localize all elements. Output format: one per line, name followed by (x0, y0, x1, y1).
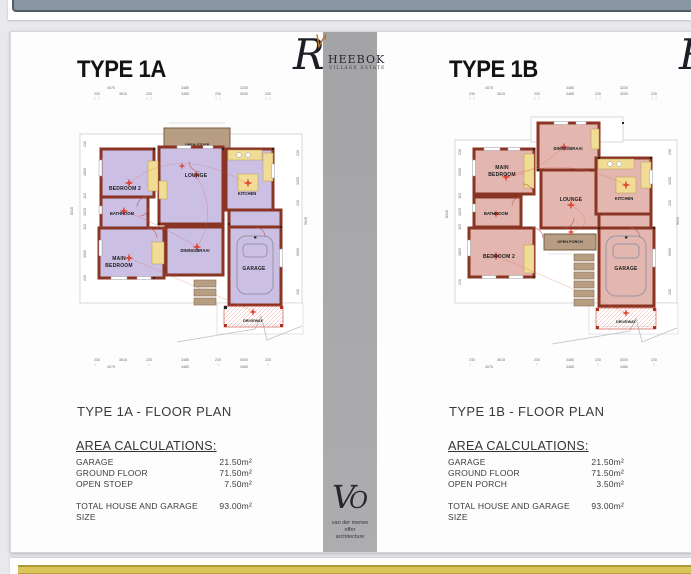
area-total-label: TOTAL HOUSE AND GARAGE SIZE (448, 501, 591, 523)
svg-text:230: 230 (265, 358, 271, 362)
svg-text:115: 115 (83, 193, 87, 199)
plan-1b-area-calculations: AREA CALCULATIONS: GARAGE 21.50m² GROUND… (448, 439, 624, 523)
svg-text:3230: 3230 (240, 86, 248, 90)
svg-text:3615: 3615 (119, 92, 127, 96)
steps (194, 280, 216, 305)
plan-1b-caption: TYPE 1B - FLOOR PLAN (449, 404, 604, 419)
svg-text:BATHROOM: BATHROOM (110, 211, 135, 216)
svg-text:1625: 1625 (83, 208, 87, 216)
svg-text:230: 230 (296, 200, 300, 206)
room-label-driveway: DRIVEWAY (616, 320, 636, 324)
area-row: GROUND FLOOR 71.50m² (448, 468, 624, 479)
svg-text:230: 230 (83, 141, 87, 147)
dimensions-bottom: 230 3615 230 3485 230 3000 230 4075 3485… (469, 358, 657, 369)
area-value: 21.50m² (591, 457, 624, 468)
svg-text:230: 230 (534, 358, 540, 362)
svg-text:BEDROOM 2: BEDROOM 2 (483, 254, 515, 260)
area-total-value: 93.00m² (591, 501, 624, 523)
area-label: GROUND FLOOR (76, 468, 148, 479)
svg-text:4075: 4075 (107, 365, 115, 369)
driveway: DRIVEWAY (596, 308, 656, 329)
area-heading: AREA CALCULATIONS: (76, 439, 252, 453)
room-utility (229, 210, 281, 227)
room-label-driveway: DRIVEWAY (243, 319, 263, 323)
svg-text:230: 230 (595, 358, 601, 362)
svg-text:6000: 6000 (296, 248, 300, 256)
estate-subtitle: VILLAGE ESTATE (329, 66, 385, 71)
svg-text:3000: 3000 (620, 358, 628, 362)
estate-logo-antler-icon (316, 33, 330, 49)
svg-text:3615: 3615 (119, 358, 127, 362)
architect-logo: VO van der merwe offer architecture (323, 480, 377, 541)
svg-text:4075: 4075 (485, 86, 493, 90)
area-value: 7.50m² (224, 479, 252, 490)
svg-text:3485: 3485 (181, 86, 189, 90)
svg-text:3255: 3255 (668, 177, 672, 185)
svg-text:DINING/BRAAI: DINING/BRAAI (180, 248, 209, 253)
svg-text:230: 230 (94, 92, 100, 96)
area-value: 71.50m² (219, 468, 252, 479)
svg-text:3480: 3480 (240, 365, 248, 369)
svg-text:3255: 3255 (296, 177, 300, 185)
svg-text:230: 230 (296, 150, 300, 156)
svg-text:6000: 6000 (668, 248, 672, 256)
plan-1a-caption: TYPE 1A - FLOOR PLAN (77, 404, 232, 419)
area-total-label: TOTAL HOUSE AND GARAGE SIZE (76, 501, 219, 523)
svg-text:3000: 3000 (240, 358, 248, 362)
svg-text:3485: 3485 (566, 365, 574, 369)
floor-plan-1b-drawing: 4075 3485 3230 230 3615 230 3485 230 300… (434, 84, 691, 384)
estate-logo-r-glyph-partial: R (679, 34, 691, 76)
svg-text:GARAGE: GARAGE (614, 266, 638, 272)
svg-text:230: 230 (668, 289, 672, 295)
svg-text:230: 230 (83, 275, 87, 281)
svg-text:LOUNGE: LOUNGE (185, 173, 208, 179)
svg-text:9945: 9945 (676, 217, 680, 225)
area-row: GROUND FLOOR 71.50m² (76, 468, 252, 479)
svg-text:115: 115 (458, 193, 462, 199)
room-lounge (159, 147, 223, 224)
plan-1b-title: TYPE 1B (449, 56, 538, 84)
driveway: DRIVEWAY (224, 306, 283, 327)
svg-text:230: 230 (458, 149, 462, 155)
area-label: OPEN STOEP (76, 479, 133, 490)
area-label: GARAGE (448, 457, 486, 468)
area-total-row: TOTAL HOUSE AND GARAGE SIZE 93.00m² (76, 501, 252, 523)
svg-text:MAIN: MAIN (495, 165, 509, 171)
svg-text:230: 230 (651, 92, 657, 96)
next-page-edge[interactable] (10, 558, 691, 574)
svg-text:4075: 4075 (107, 86, 115, 90)
dimensions-bottom: 230 3615 230 3485 230 3000 230 4075 3485… (94, 358, 271, 369)
svg-text:115: 115 (83, 224, 87, 230)
floor-plan-1a-drawing: 4075 3485 3230 230 3615 230 3485 230 300… (59, 84, 321, 384)
svg-text:BEDROOM 2: BEDROOM 2 (109, 186, 141, 192)
svg-text:230: 230 (469, 92, 475, 96)
svg-text:230: 230 (458, 279, 462, 285)
svg-text:8315: 8315 (445, 210, 449, 218)
svg-text:230: 230 (668, 149, 672, 155)
svg-text:2800: 2800 (83, 168, 87, 176)
svg-text:3485: 3485 (181, 358, 189, 362)
area-value: 3.50m² (596, 479, 624, 490)
svg-text:2800: 2800 (458, 248, 462, 256)
svg-text:3485: 3485 (566, 92, 574, 96)
area-heading: AREA CALCULATIONS: (448, 439, 624, 453)
plan-1a-area-calculations: AREA CALCULATIONS: GARAGE 21.50m² GROUND… (76, 439, 252, 523)
svg-text:230: 230 (94, 358, 100, 362)
svg-text:230: 230 (595, 92, 601, 96)
area-label: GROUND FLOOR (448, 468, 520, 479)
document-viewer: R HEEBOK VILLAGE ESTATE R VO van der mer… (0, 0, 691, 574)
svg-text:3000: 3000 (458, 168, 462, 176)
svg-text:MAIN: MAIN (112, 256, 126, 262)
svg-text:1625: 1625 (458, 208, 462, 216)
previous-page-bar (12, 0, 691, 12)
architect-monogram-o: O (349, 488, 368, 514)
svg-text:BEDROOM: BEDROOM (488, 172, 516, 178)
svg-text:230: 230 (146, 92, 152, 96)
svg-text:3480: 3480 (620, 365, 628, 369)
room-utility (599, 214, 651, 228)
svg-text:115: 115 (458, 224, 462, 230)
architect-name-line3: architecture (323, 534, 377, 541)
plan-1a-title: TYPE 1A (77, 56, 166, 84)
area-label: OPEN PORCH (448, 479, 507, 490)
svg-text:3000: 3000 (240, 92, 248, 96)
previous-page-edge[interactable] (8, 0, 691, 20)
svg-text:230: 230 (534, 92, 540, 96)
svg-text:3615: 3615 (497, 92, 505, 96)
svg-text:3485: 3485 (181, 365, 189, 369)
svg-text:230: 230 (651, 358, 657, 362)
svg-text:3000: 3000 (83, 250, 87, 258)
svg-text:DINING/BRAAI: DINING/BRAAI (553, 146, 582, 151)
svg-text:230: 230 (469, 358, 475, 362)
svg-text:230: 230 (296, 289, 300, 295)
area-value: 71.50m² (591, 468, 624, 479)
svg-text:KITCHEN: KITCHEN (615, 196, 634, 201)
svg-text:KITCHEN: KITCHEN (238, 191, 257, 196)
svg-text:3615: 3615 (497, 358, 505, 362)
floor-plans-page[interactable]: R HEEBOK VILLAGE ESTATE R VO van der mer… (10, 31, 691, 553)
dimensions-top: 4075 3485 3230 230 3615 230 3485 230 300… (94, 86, 271, 100)
svg-text:3485: 3485 (566, 358, 574, 362)
svg-text:9945: 9945 (304, 217, 308, 225)
svg-text:3485: 3485 (181, 92, 189, 96)
dimensions-top: 4075 3485 3230 230 3615 230 3485 230 300… (469, 86, 657, 100)
svg-text:3485: 3485 (566, 86, 574, 90)
next-page-gold-frame (18, 565, 691, 574)
svg-text:230: 230 (215, 358, 221, 362)
svg-text:230: 230 (265, 92, 271, 96)
area-total-value: 93.00m² (219, 501, 252, 523)
svg-text:8315: 8315 (70, 207, 74, 215)
area-total-row: TOTAL HOUSE AND GARAGE SIZE 93.00m² (448, 501, 624, 523)
svg-text:3230: 3230 (620, 86, 628, 90)
room-label-porch: OPEN PORCH (557, 240, 583, 244)
area-row: OPEN PORCH 3.50m² (448, 479, 624, 490)
svg-text:3000: 3000 (620, 92, 628, 96)
estate-name: HEEBOK (328, 53, 385, 66)
area-row: GARAGE 21.50m² (448, 457, 624, 468)
svg-text:BATHROOM: BATHROOM (484, 211, 509, 216)
area-row: OPEN STOEP 7.50m² (76, 479, 252, 490)
architect-name-line1: van der merwe (323, 520, 377, 527)
svg-text:230: 230 (215, 92, 221, 96)
area-value: 21.50m² (219, 457, 252, 468)
architect-name-line2: offer (323, 527, 377, 534)
area-row: GARAGE 21.50m² (76, 457, 252, 468)
svg-text:GARAGE: GARAGE (242, 266, 266, 272)
svg-text:BEDROOM: BEDROOM (105, 263, 133, 269)
svg-text:LOUNGE: LOUNGE (560, 197, 583, 203)
svg-text:230: 230 (146, 358, 152, 362)
area-label: GARAGE (76, 457, 114, 468)
divider-stripe (323, 32, 377, 552)
svg-text:4075: 4075 (485, 365, 493, 369)
svg-text:230: 230 (668, 200, 672, 206)
